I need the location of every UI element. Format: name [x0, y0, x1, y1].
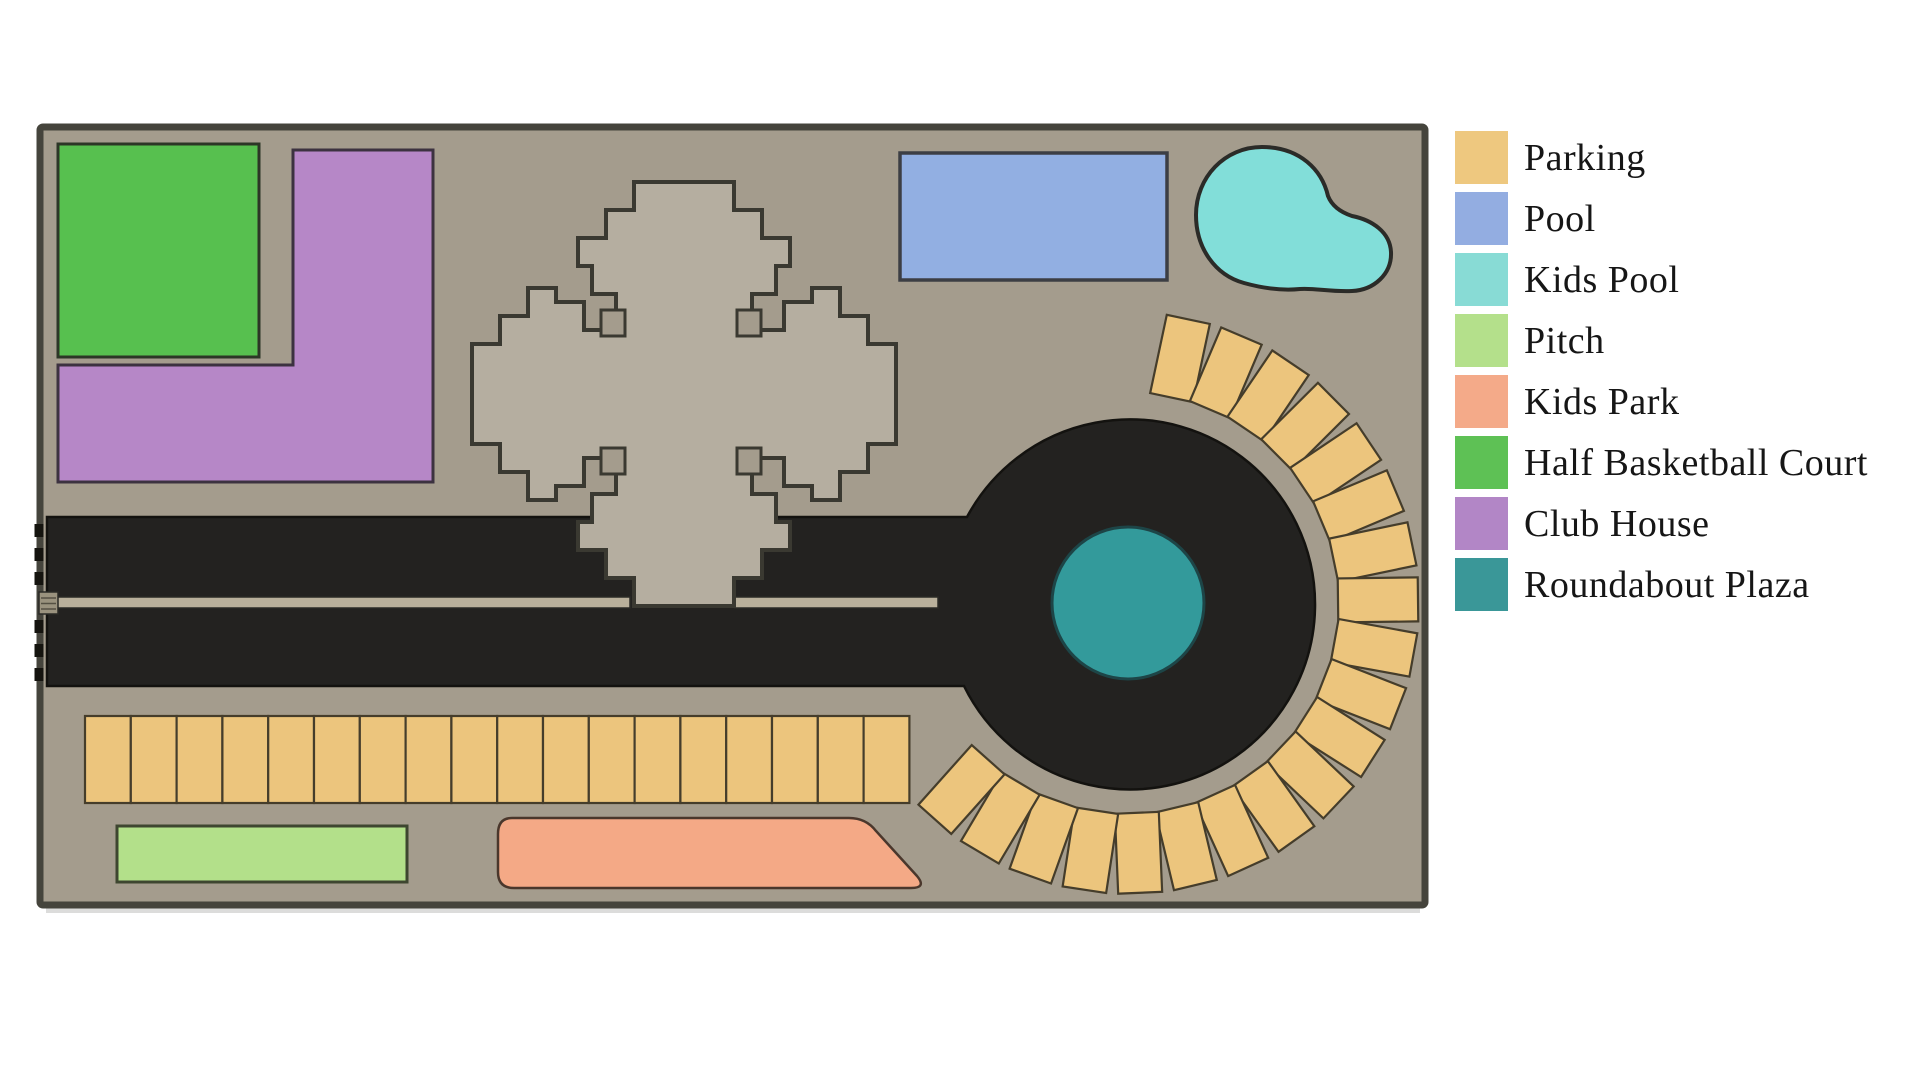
legend-label: Half Basketball Court	[1524, 444, 1868, 482]
legend-swatch-kids-pool	[1455, 253, 1508, 306]
legend-item: Parking	[1455, 131, 1868, 184]
pitch-area	[117, 826, 407, 882]
parking-stall	[680, 716, 726, 803]
legend-label: Parking	[1524, 139, 1646, 177]
legend-item: Half Basketball Court	[1455, 436, 1868, 489]
legend-item: Pool	[1455, 192, 1868, 245]
entrance-dash	[35, 620, 44, 633]
half-basketball-court-area	[58, 144, 259, 357]
legend-item: Kids Pool	[1455, 253, 1868, 306]
legend-swatch-pool	[1455, 192, 1508, 245]
parking-stall	[451, 716, 497, 803]
parking-stall	[222, 716, 268, 803]
legend-label: Roundabout Plaza	[1524, 566, 1810, 604]
parking-stall	[360, 716, 406, 803]
building-notch	[601, 310, 625, 336]
road-median-right	[735, 597, 938, 608]
parking-stall	[268, 716, 314, 803]
entrance-dash	[35, 668, 44, 681]
parking-stall	[85, 716, 131, 803]
entrance-dash	[35, 548, 44, 561]
parking-stall	[864, 716, 910, 803]
building-notch	[601, 448, 625, 474]
kids-park-area	[498, 818, 921, 888]
parking-stall-ring	[1115, 812, 1162, 894]
entrance-dash	[35, 644, 44, 657]
legend-label: Club House	[1524, 505, 1710, 543]
legend-swatch-club-house	[1455, 497, 1508, 550]
legend-label: Kids Park	[1524, 383, 1679, 421]
parking-stall	[543, 716, 589, 803]
road-median-left	[56, 597, 630, 608]
parking-stall	[635, 716, 681, 803]
parking-stall	[131, 716, 177, 803]
site-shadow	[46, 909, 1420, 914]
building-notch	[737, 310, 761, 336]
parking-stall	[497, 716, 543, 803]
parking-stall	[589, 716, 635, 803]
legend-item: Roundabout Plaza	[1455, 558, 1868, 611]
parking-stall-ring	[1338, 577, 1419, 622]
legend-swatch-pitch	[1455, 314, 1508, 367]
parking-stall	[406, 716, 452, 803]
entrance-dash	[35, 524, 44, 537]
parking-stall	[177, 716, 223, 803]
site-plan-figure: Parking Pool Kids Pool Pitch Kids Park H…	[0, 0, 1920, 1080]
building-notch	[737, 448, 761, 474]
legend-item: Club House	[1455, 497, 1868, 550]
legend-item: Kids Park	[1455, 375, 1868, 428]
legend-swatch-half-basketball-court	[1455, 436, 1508, 489]
parking-stall	[818, 716, 864, 803]
legend-label: Kids Pool	[1524, 261, 1679, 299]
legend-swatch-roundabout-plaza	[1455, 558, 1508, 611]
legend-swatch-kids-park	[1455, 375, 1508, 428]
page: { "page": { "background": "#ffffff" }, "…	[0, 0, 1920, 1080]
legend: Parking Pool Kids Pool Pitch Kids Park H…	[1455, 131, 1868, 611]
legend-label: Pool	[1524, 200, 1596, 238]
pool-area	[900, 153, 1167, 280]
legend-item: Pitch	[1455, 314, 1868, 367]
parking-stall	[726, 716, 772, 803]
legend-swatch-parking	[1455, 131, 1508, 184]
parking-stall	[314, 716, 360, 803]
parking-stall	[772, 716, 818, 803]
entrance-dash	[35, 572, 44, 585]
legend-label: Pitch	[1524, 322, 1605, 360]
roundabout-plaza-area	[1052, 527, 1204, 679]
